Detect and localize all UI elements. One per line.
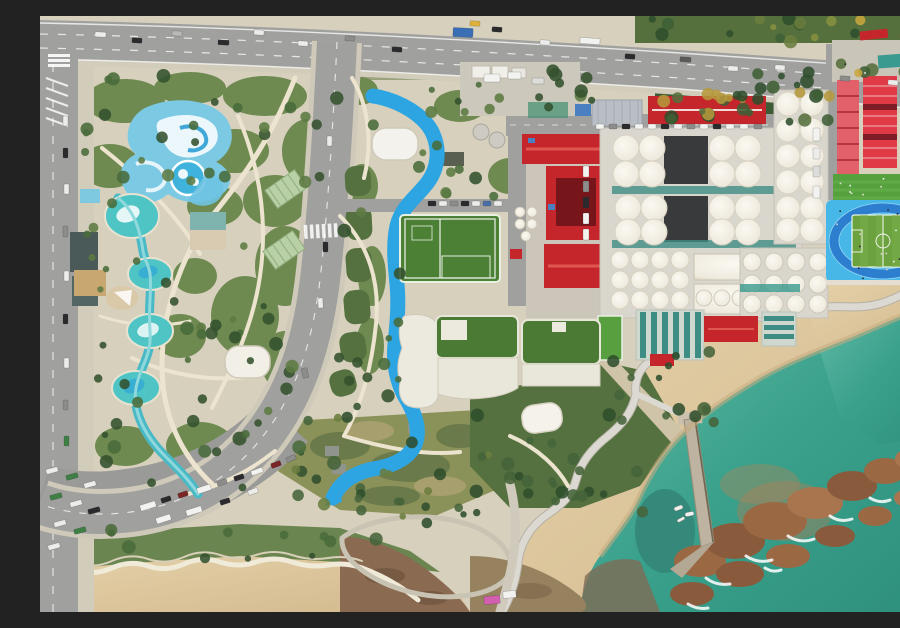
vehicle: [508, 72, 521, 79]
swirl-pool: [121, 100, 232, 206]
tree: [187, 415, 199, 427]
tree: [665, 362, 672, 369]
vehicle: [680, 57, 691, 63]
vehicle: [532, 78, 544, 84]
tree: [548, 439, 557, 448]
tree: [614, 390, 624, 400]
person-dot: [880, 186, 882, 188]
teal-basin-grid: [636, 310, 704, 360]
tree: [581, 72, 593, 84]
tree: [292, 490, 304, 502]
tree: [425, 106, 437, 118]
vehicle: [583, 166, 589, 177]
vehicle: [728, 66, 738, 72]
tree: [352, 357, 363, 368]
tree: [111, 418, 123, 430]
tree: [775, 33, 785, 43]
tree: [673, 403, 686, 416]
tree: [299, 176, 311, 188]
vehicle: [540, 40, 550, 46]
tree: [662, 18, 674, 30]
red-shack: [510, 249, 522, 259]
tree: [356, 207, 366, 217]
tree: [432, 141, 442, 151]
tree: [795, 87, 806, 98]
tree: [261, 303, 267, 309]
tree: [826, 16, 836, 26]
vehicle: [392, 47, 402, 53]
vehicle: [713, 124, 721, 129]
crosswalk-topleft: [48, 54, 70, 67]
tree: [334, 353, 344, 363]
vehicle: [64, 271, 69, 281]
person-dot: [887, 209, 889, 211]
tree: [461, 108, 469, 116]
tree: [264, 407, 272, 415]
tree: [100, 342, 107, 349]
vehicle: [813, 186, 820, 198]
tree: [672, 92, 683, 103]
tree: [344, 376, 354, 386]
blue-shed: [575, 104, 591, 116]
tree: [97, 286, 103, 292]
aerial-photo: Aerial drone photograph of a seaside lei…: [40, 16, 900, 612]
tree: [737, 103, 750, 116]
tree: [434, 468, 446, 480]
tree: [395, 376, 402, 383]
tree: [767, 81, 780, 94]
tree: [119, 379, 129, 389]
tree: [784, 35, 797, 48]
teal-basin-grid-2: [762, 312, 796, 346]
vehicle: [648, 124, 656, 129]
vehicle: [583, 229, 589, 240]
tree: [501, 457, 514, 470]
gray-silo: [473, 124, 489, 140]
vehicle: [483, 201, 491, 206]
vehicle: [583, 197, 589, 208]
vehicle: [888, 80, 898, 86]
tree: [89, 254, 96, 261]
tree: [521, 475, 533, 487]
vehicle: [583, 181, 589, 192]
pink-building-1: [837, 80, 859, 176]
tree: [198, 394, 207, 403]
aerial-photo-canvas: [40, 16, 900, 612]
tree: [245, 555, 251, 561]
vehicle: [635, 124, 643, 129]
tree: [189, 121, 199, 131]
person-dot: [895, 230, 897, 232]
tree: [229, 331, 241, 343]
tree: [200, 553, 210, 563]
tree: [342, 412, 353, 423]
vehicle: [813, 128, 820, 141]
person-dot: [886, 253, 888, 255]
green-court: [598, 316, 622, 360]
vehicle: [625, 54, 635, 60]
vehicle: [318, 298, 324, 308]
vehicle: [298, 41, 308, 47]
tree: [102, 432, 108, 438]
tree: [822, 114, 834, 126]
tree: [300, 112, 310, 122]
tree: [657, 95, 670, 108]
vehicle: [172, 31, 182, 37]
track-pitch: [852, 215, 900, 267]
running-track-field: [826, 200, 900, 285]
seawall: [826, 280, 900, 285]
tree: [526, 437, 533, 444]
vehicle: [323, 242, 328, 252]
tree: [484, 104, 494, 114]
tree: [185, 357, 191, 363]
tree: [157, 69, 171, 83]
tree: [600, 490, 608, 498]
tree: [556, 486, 569, 499]
vehicle: [700, 124, 708, 129]
tree: [210, 320, 221, 331]
vehicle: [813, 148, 820, 159]
tree: [353, 403, 361, 411]
tree: [446, 167, 456, 177]
tree: [495, 93, 505, 103]
tree: [523, 488, 533, 498]
tree: [672, 352, 680, 360]
tree: [716, 93, 727, 104]
person-dot: [859, 246, 861, 248]
vehicle: [132, 38, 142, 44]
soccer-field: [400, 215, 500, 282]
tree: [631, 466, 643, 478]
tree: [460, 511, 466, 517]
vehicle: [64, 436, 69, 446]
tree: [546, 64, 559, 77]
tree: [755, 82, 767, 94]
tree: [99, 109, 111, 121]
tree: [429, 87, 435, 93]
vehicle: [726, 124, 734, 129]
tree: [230, 316, 237, 323]
tree: [198, 445, 211, 458]
tree: [280, 383, 292, 395]
tree: [419, 149, 426, 156]
tree: [567, 453, 579, 465]
tree: [204, 168, 215, 179]
tree: [617, 415, 627, 425]
tree: [170, 297, 179, 306]
tree: [800, 75, 814, 89]
vehicle: [63, 314, 68, 324]
tree: [798, 113, 811, 126]
green-roof-building-a: [436, 316, 518, 358]
tree: [138, 157, 145, 164]
person-dot: [859, 233, 861, 235]
small-cyan-pool: [80, 189, 100, 203]
tree: [147, 478, 156, 487]
person-dot: [858, 267, 860, 269]
vehicle: [63, 226, 68, 237]
tree: [285, 102, 297, 114]
tree: [656, 375, 662, 381]
tree: [280, 531, 289, 540]
tree: [286, 360, 299, 373]
tree: [156, 132, 168, 144]
vehicle: [64, 184, 69, 194]
tree: [786, 118, 794, 126]
tree: [440, 187, 451, 198]
person-dot: [845, 63, 847, 65]
green-roof-building-b: [522, 320, 600, 364]
tree: [607, 355, 619, 367]
tree: [312, 474, 322, 484]
vehicle: [674, 124, 682, 129]
tree: [588, 97, 595, 104]
person-dot: [893, 261, 895, 263]
tree: [666, 114, 676, 124]
person-dot: [839, 210, 841, 212]
tree: [100, 455, 113, 468]
tree: [370, 533, 383, 546]
tree: [368, 119, 379, 130]
tree: [394, 268, 406, 280]
silver-warehouse: [592, 100, 642, 126]
tree: [355, 495, 363, 503]
vehicle: [439, 201, 447, 206]
vehicle: [63, 400, 68, 410]
tree: [854, 69, 862, 77]
person-dot: [897, 213, 899, 215]
tree: [535, 93, 543, 101]
tree: [337, 224, 351, 238]
red-roof-building-c: [544, 244, 608, 288]
vehicle: [494, 201, 502, 206]
gray-silo: [489, 132, 505, 148]
tree: [489, 192, 498, 201]
red-roof-building-a: [522, 134, 608, 164]
tree: [476, 82, 482, 88]
vehicle: [484, 595, 501, 604]
person-dot: [862, 278, 864, 280]
white-terrace-building: [398, 315, 438, 408]
tree: [421, 502, 430, 511]
person-dot: [840, 183, 842, 185]
vehicle: [461, 201, 469, 206]
tree: [191, 138, 199, 146]
tree: [548, 477, 556, 485]
tree: [577, 490, 588, 501]
vehicle: [492, 27, 502, 33]
tree: [504, 471, 517, 484]
tree: [811, 34, 819, 42]
vehicle: [661, 124, 669, 129]
person-dot: [881, 253, 883, 255]
tree: [334, 414, 342, 422]
vehicle: [95, 32, 106, 38]
tree: [394, 498, 402, 506]
vehicle: [218, 40, 229, 46]
tree: [240, 242, 248, 250]
tree: [186, 176, 195, 185]
tree: [223, 527, 233, 537]
tree: [292, 465, 301, 474]
vehicle: [63, 148, 68, 158]
tree: [122, 540, 136, 554]
vehicle: [453, 27, 473, 37]
tree: [385, 470, 392, 477]
tree: [133, 257, 141, 265]
vehicle: [754, 124, 762, 129]
vehicle: [345, 36, 355, 42]
tree: [315, 172, 325, 182]
vehicle: [503, 590, 517, 598]
tree: [362, 372, 372, 382]
tree: [239, 484, 247, 492]
tree: [812, 89, 823, 100]
tree: [324, 535, 336, 547]
vehicle: [840, 76, 850, 82]
tree: [699, 108, 705, 114]
white-rink-plaza: [372, 128, 418, 160]
person-dot: [836, 224, 838, 226]
tree: [394, 317, 404, 327]
tree: [356, 505, 366, 515]
vehicle: [64, 358, 69, 368]
tree: [303, 416, 312, 425]
tree: [469, 172, 482, 185]
tree: [413, 161, 425, 173]
tree: [697, 402, 711, 416]
tree: [702, 88, 714, 100]
tree: [455, 165, 464, 174]
tree: [627, 374, 634, 381]
tree: [330, 91, 343, 104]
tree: [132, 397, 143, 408]
tree: [292, 440, 306, 454]
tree: [211, 98, 219, 106]
tree: [233, 103, 243, 113]
tree: [478, 452, 487, 461]
tree: [704, 346, 716, 358]
tree: [94, 374, 102, 382]
tree: [794, 17, 806, 29]
vehicle: [450, 201, 458, 206]
tree: [575, 84, 588, 97]
vehicle: [470, 21, 480, 27]
tree: [161, 278, 171, 288]
vehicle: [813, 166, 820, 177]
pink-building-2: [863, 76, 897, 168]
tree: [219, 171, 231, 183]
vehicle: [740, 124, 748, 129]
tree: [107, 72, 120, 85]
tree: [309, 553, 315, 559]
tree: [180, 321, 194, 335]
vehicle: [472, 201, 480, 206]
tree: [386, 335, 393, 342]
vehicle: [254, 30, 264, 36]
tree: [455, 98, 462, 105]
person-dot: [864, 72, 866, 74]
tree: [662, 412, 670, 420]
tree: [824, 91, 835, 102]
vehicle: [687, 124, 695, 129]
person-dot: [849, 185, 851, 187]
tree: [752, 68, 763, 79]
tree: [117, 171, 130, 184]
tree: [752, 93, 764, 105]
person-dot: [886, 269, 888, 271]
tree: [381, 389, 394, 402]
tree: [197, 329, 207, 339]
tree: [778, 73, 785, 80]
tree: [83, 129, 90, 136]
tree: [473, 509, 480, 516]
tree: [470, 485, 483, 498]
tree: [269, 337, 283, 351]
tree: [312, 119, 322, 129]
tree: [105, 524, 117, 536]
person-dot: [849, 191, 851, 193]
tree: [544, 103, 553, 112]
tree: [89, 223, 99, 233]
vehicle: [609, 124, 617, 129]
tree: [794, 82, 801, 89]
tree: [259, 122, 270, 133]
tree: [737, 91, 748, 102]
tree: [471, 409, 484, 422]
tree: [378, 358, 390, 370]
vehicle: [327, 136, 332, 146]
person-dot: [851, 193, 853, 195]
tree: [318, 498, 330, 510]
tree: [770, 24, 776, 30]
vehicle: [622, 124, 630, 129]
tree: [424, 487, 432, 495]
tree: [263, 313, 275, 325]
tree: [327, 456, 341, 470]
tree: [247, 357, 254, 364]
tree: [575, 466, 584, 475]
tree: [603, 408, 616, 421]
tree: [726, 30, 733, 37]
person-dot: [862, 194, 864, 196]
tree: [103, 266, 109, 272]
tree: [399, 513, 406, 520]
person-dot: [883, 178, 885, 180]
tree: [406, 437, 418, 449]
tree: [212, 447, 221, 456]
tree: [637, 506, 648, 517]
tree: [241, 430, 249, 438]
tree: [254, 419, 262, 427]
vehicle: [775, 65, 785, 71]
tree: [850, 29, 860, 39]
tree: [81, 148, 89, 156]
tree: [551, 497, 560, 506]
vehicle: [583, 213, 589, 224]
tree: [162, 169, 174, 181]
tree: [108, 440, 122, 454]
tree: [454, 503, 463, 512]
tree: [84, 231, 91, 238]
vehicle: [484, 74, 500, 82]
tree: [709, 417, 719, 427]
vehicle: [428, 201, 436, 206]
vehicle: [580, 37, 600, 44]
vehicle: [596, 124, 604, 129]
tree: [422, 518, 433, 529]
